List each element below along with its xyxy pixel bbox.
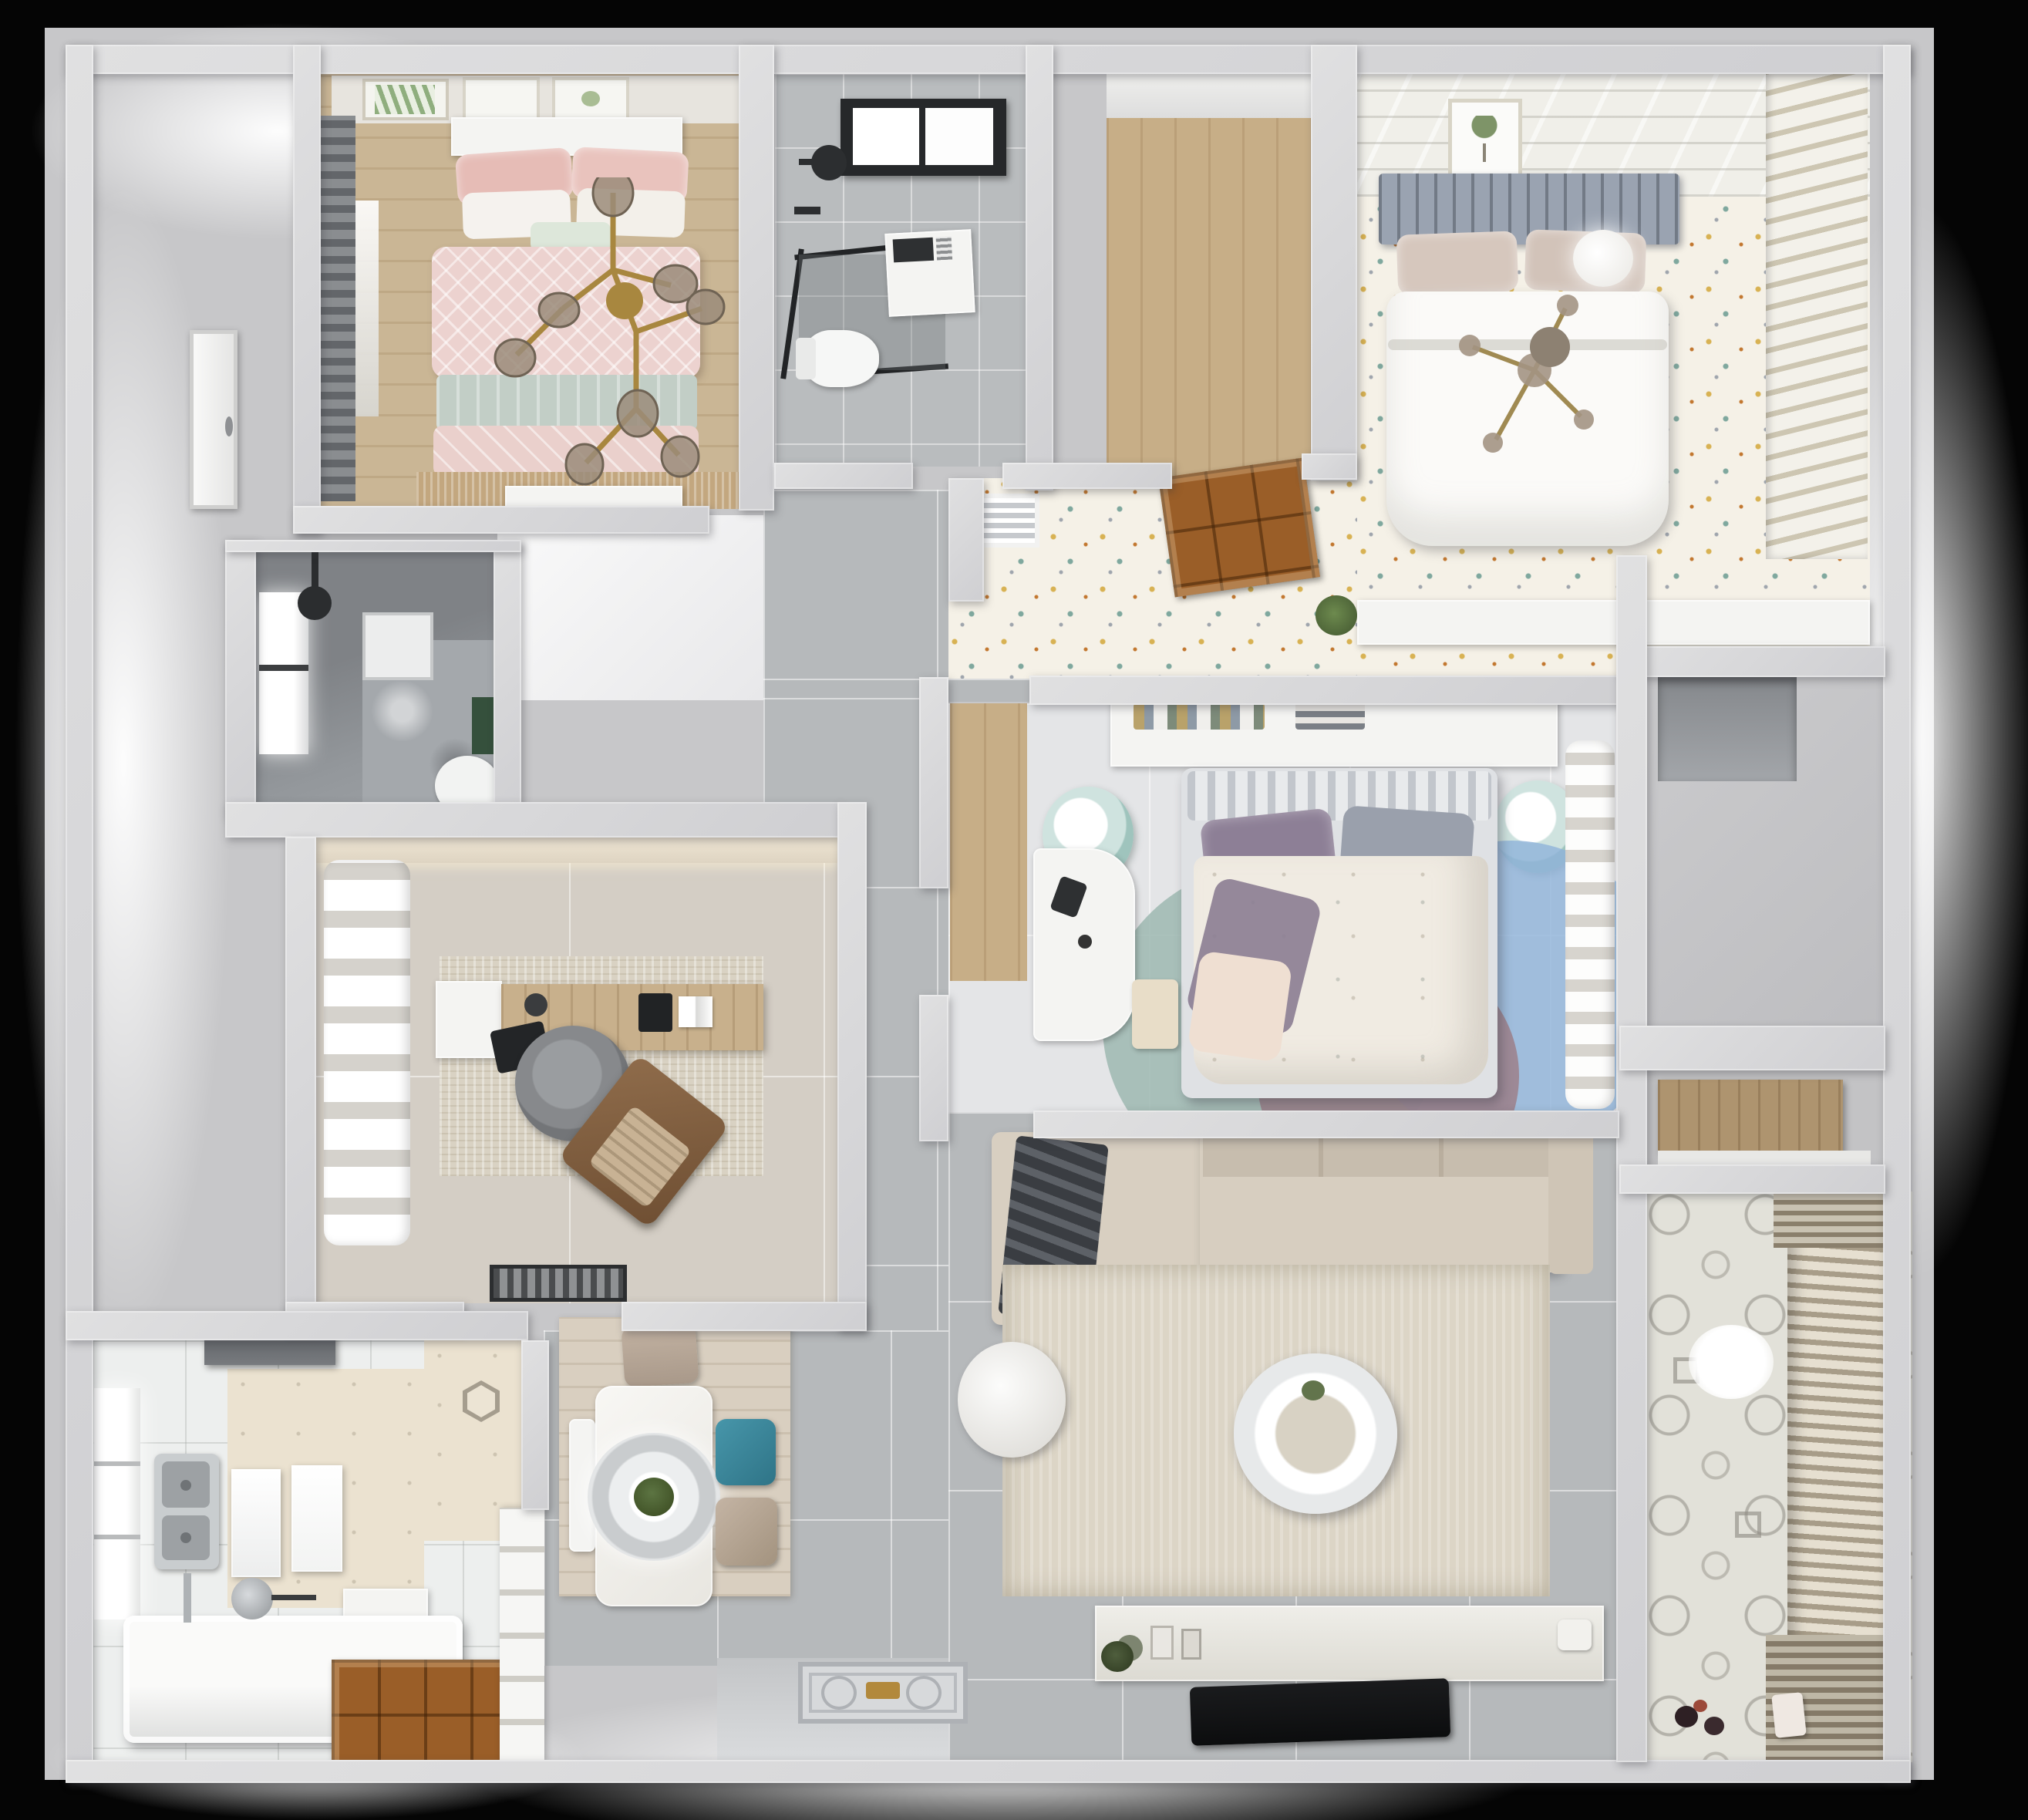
shower-head-black	[298, 586, 332, 620]
wall	[1311, 45, 1357, 480]
sink-drain	[180, 1532, 191, 1543]
gold-chandelier	[1427, 278, 1642, 478]
wall	[293, 506, 709, 534]
side-table	[1132, 979, 1178, 1049]
wall	[1619, 1164, 1885, 1194]
desk-open-book	[679, 996, 712, 1027]
wall	[1029, 676, 1619, 705]
wall	[774, 463, 913, 489]
mixer-handle	[271, 1595, 316, 1600]
window-mullions	[94, 1461, 140, 1466]
wall	[1619, 1026, 1885, 1070]
sofa-back-cushions	[1203, 1134, 1559, 1177]
mirror-white	[362, 612, 433, 680]
wall	[622, 1302, 867, 1331]
sofa-arm	[1548, 1131, 1593, 1274]
frame-leaf	[581, 91, 600, 106]
wall	[837, 802, 867, 1330]
washer-controls	[893, 238, 934, 263]
wall	[919, 677, 948, 888]
shelf-books	[1134, 703, 1265, 730]
shower-arm	[799, 159, 830, 165]
door-handle	[225, 416, 233, 436]
coffee-table-sprig	[1302, 1380, 1325, 1400]
entry-doormat	[798, 1662, 968, 1724]
coffee-table-ring	[1234, 1353, 1397, 1514]
wall	[1616, 555, 1647, 1762]
ceiling-light	[1689, 1325, 1774, 1399]
wall	[66, 1311, 528, 1340]
art-frame	[552, 77, 629, 122]
wood-strip	[950, 703, 1027, 981]
chair-beige-bottom	[716, 1498, 777, 1566]
toy-red	[1693, 1700, 1707, 1712]
curtain-dark	[320, 116, 355, 501]
window-bright	[94, 1388, 140, 1619]
shelf-unit-white	[500, 1508, 544, 1762]
toy-dark	[1704, 1717, 1724, 1735]
desk-monitor	[638, 993, 672, 1032]
wall	[225, 802, 839, 838]
console-decor	[1558, 1619, 1592, 1650]
chair-beige-top	[621, 1323, 699, 1388]
wall-outer-left	[66, 45, 93, 1780]
wall	[1002, 463, 1172, 489]
console-decor	[1181, 1629, 1201, 1660]
wall	[948, 478, 984, 602]
console-shelf	[1357, 600, 1870, 645]
desk-knob	[1078, 935, 1092, 949]
wall	[225, 540, 521, 552]
doormat-dark	[494, 1269, 623, 1298]
wall	[293, 45, 321, 534]
sink-double-steel	[154, 1454, 219, 1569]
closet-nook-floor	[497, 515, 763, 700]
shower-pipe	[312, 552, 318, 591]
wall	[919, 995, 948, 1141]
green-accent	[472, 697, 495, 754]
motif-square	[1735, 1512, 1761, 1538]
skylight-glass	[853, 108, 919, 165]
floorplan-render	[0, 0, 2028, 1820]
open-door-wood	[332, 1660, 517, 1768]
louvered-shutters	[1766, 73, 1868, 559]
chair-teal	[716, 1419, 776, 1485]
niche-wood-shelf	[1658, 1080, 1843, 1154]
wall-outer-top	[66, 45, 1910, 74]
wall	[1619, 646, 1885, 677]
tub-mixer	[231, 1578, 273, 1619]
wall	[1026, 45, 1053, 490]
tv-flat	[1190, 1678, 1450, 1746]
entry-wreath	[1101, 1641, 1134, 1672]
closet-wood-floor	[1107, 116, 1315, 478]
mat-circle-motif	[906, 1676, 942, 1710]
wall-outer-right	[1883, 45, 1911, 1780]
wall	[1033, 1111, 1619, 1138]
art-frame-plant	[1448, 99, 1522, 180]
wall	[521, 1340, 549, 1510]
console-decor	[1150, 1626, 1174, 1660]
window-mullion	[259, 665, 308, 671]
botanical-print	[375, 85, 435, 114]
niche-shelf-edge	[1658, 1151, 1871, 1164]
tub-faucet-chrome	[184, 1573, 191, 1623]
washer-controls	[936, 236, 953, 260]
art-frame-botanical	[362, 79, 449, 120]
wall	[285, 837, 316, 1330]
dark-doorway	[1658, 677, 1797, 781]
desk-lamp	[524, 993, 547, 1016]
window-mullions	[94, 1535, 140, 1539]
curtain-billowy	[324, 860, 410, 1245]
branch-chandelier	[447, 177, 740, 501]
pillow-cream	[1187, 950, 1293, 1062]
toilet-tank	[796, 338, 816, 379]
wall	[1302, 453, 1357, 480]
shower-valve	[794, 207, 820, 214]
art-frame	[463, 77, 540, 122]
sink-drain	[180, 1480, 191, 1491]
open-door-brown	[1158, 458, 1320, 598]
skylight-glass	[925, 108, 993, 165]
window-sheer	[355, 201, 379, 416]
wall	[739, 45, 774, 511]
wall	[225, 540, 256, 817]
white-bags	[1771, 1692, 1807, 1738]
mat-gold-clasp	[866, 1682, 900, 1699]
ac-vent	[978, 498, 1035, 543]
pouf-white	[958, 1342, 1066, 1458]
window-bright	[259, 592, 308, 754]
leaning-panel	[231, 1469, 281, 1577]
shelf-book-stack	[1295, 702, 1365, 730]
pendant-plant-center	[634, 1478, 674, 1516]
shelf-plant	[1316, 595, 1357, 635]
mat-circle-motif	[821, 1676, 857, 1710]
washing-machine	[884, 229, 975, 317]
curtain-right	[1565, 740, 1615, 1109]
wall-outer-bottom	[66, 1760, 1911, 1783]
plant-print	[1468, 116, 1501, 162]
wall	[494, 540, 521, 817]
study-cove-wall	[315, 837, 839, 863]
closet-back-wall	[1107, 73, 1315, 118]
leaning-panel	[291, 1465, 342, 1572]
